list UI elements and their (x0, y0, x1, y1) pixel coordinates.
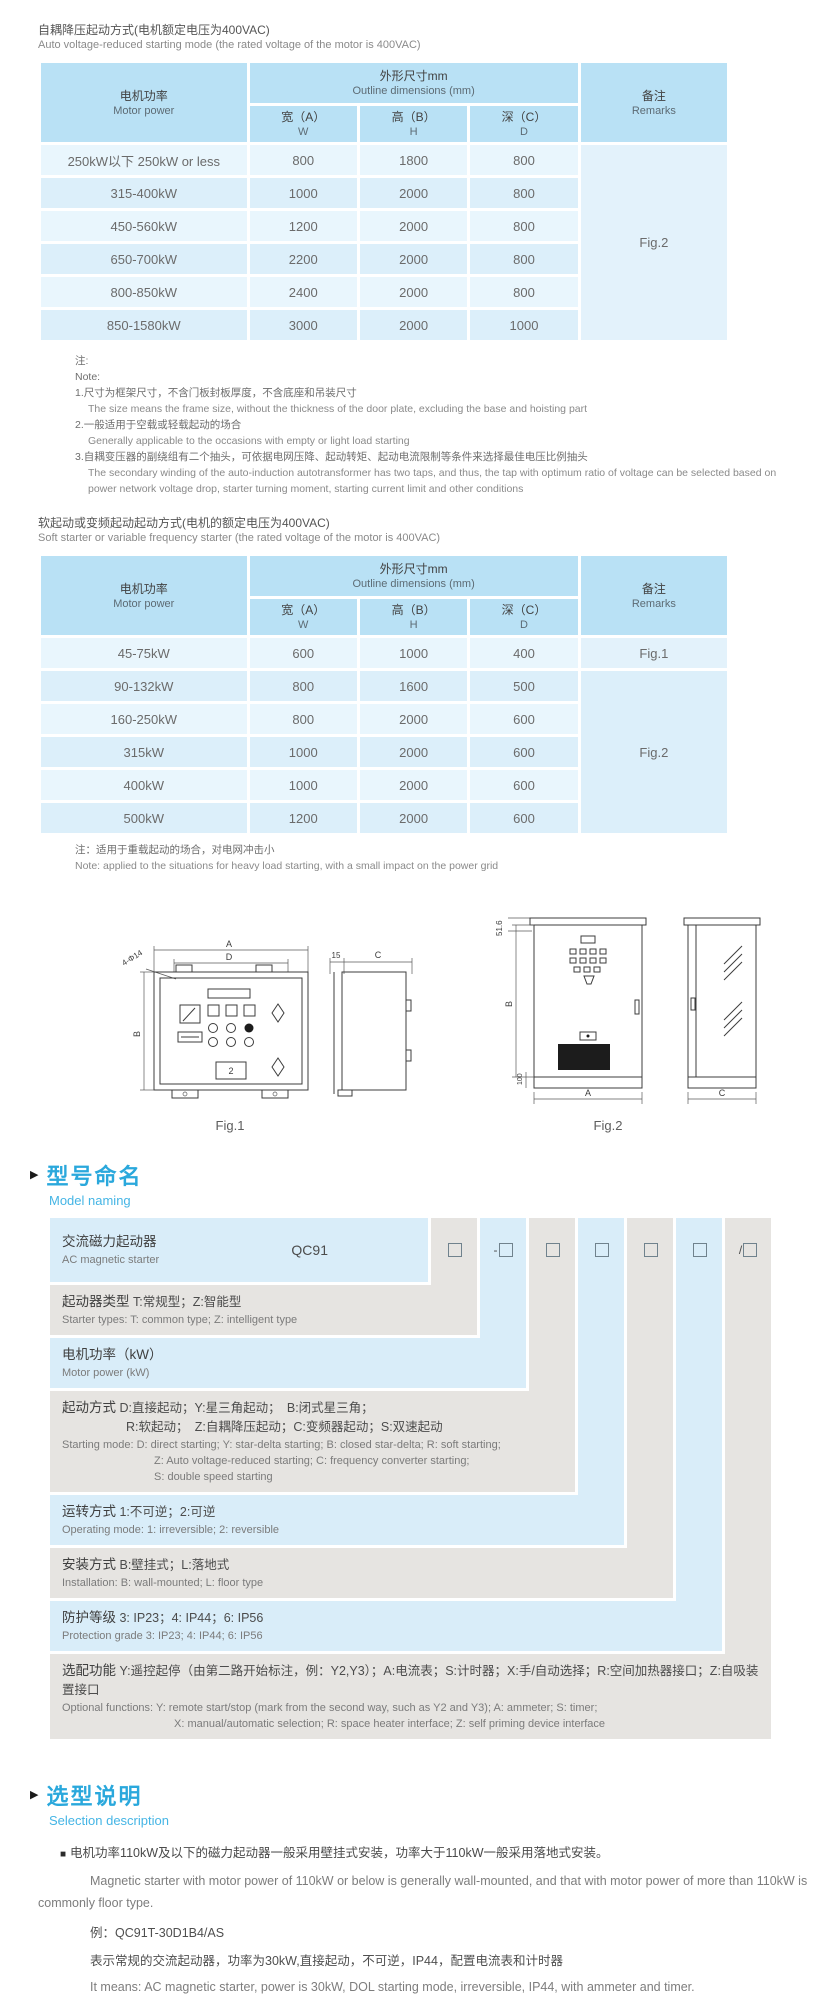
code-box-7: / (725, 1218, 771, 1282)
square-bullet: ■ (60, 1849, 66, 1860)
placeholder-box (743, 1243, 757, 1257)
fig1-drawing: A D 4-Φ14 B (116, 936, 434, 1114)
note-item: 1.尺寸为框架尺寸，不含门板封板厚度，不含底座和吊装尺寸 The size me… (75, 385, 830, 417)
width-cell: 1000 (250, 770, 357, 800)
power-cell: 500kW (41, 803, 247, 833)
code-box-3 (529, 1218, 575, 1282)
dim-label-c: C (375, 950, 382, 960)
placeholder-box (644, 1243, 658, 1257)
model-row-optional-functions: 选配功能 Y:遥控起停（由第二路开始标注，例：Y2,Y3）；A:电流表；S:计时… (50, 1654, 771, 1739)
table1-notes: 注: Note: 1.尺寸为框架尺寸，不含门板封板厚度，不含底座和吊装尺寸 Th… (75, 353, 830, 497)
header-remarks: 备注 Remarks (581, 556, 727, 635)
auto-voltage-table: 电机功率 Motor power 外形尺寸mm Outline dimensio… (38, 60, 730, 343)
power-cell: 45-75kW (41, 638, 247, 668)
width-cell: 1200 (250, 803, 357, 833)
note-mark-en: Note: (75, 369, 830, 385)
table2-title: 软起动或变频起动起动方式(电机的额定电压为400VAC) Soft starte… (38, 515, 830, 546)
width-cell: 800 (250, 704, 357, 734)
depth-cell: 800 (470, 145, 577, 175)
height-cell: 2000 (360, 704, 467, 734)
depth-cell: 400 (470, 638, 577, 668)
width-cell: 2400 (250, 277, 357, 307)
selection-paragraph-cn: ■电机功率110kW及以下的磁力起动器一般采用壁挂式安装，功率大于110kW一般… (60, 1842, 808, 1866)
header-remarks: 备注 Remarks (581, 63, 727, 142)
header-depth: 深（C） D (470, 106, 577, 142)
table-row: 45-75kW 600 1000 400 Fig.1 (41, 638, 727, 668)
model-row-starter-type: 起动器类型 T:常规型；Z:智能型 Starter types: T: comm… (50, 1285, 477, 1335)
dim-label-holes: 4-Φ14 (120, 948, 144, 968)
power-cell: 850-1580kW (41, 310, 247, 340)
height-cell: 2000 (360, 178, 467, 208)
height-cell: 2000 (360, 770, 467, 800)
remark-cell: Fig.2 (581, 145, 727, 340)
placeholder-box (448, 1243, 462, 1257)
header-outline-dimensions: 外形尺寸mm Outline dimensions (mm) (250, 556, 578, 596)
table1-title-en: Auto voltage-reduced starting mode (the … (38, 38, 830, 53)
table-row: 90-132kW 800 1600 500 Fig.2 (41, 671, 727, 701)
power-cell: 250kW以下 250kW or less (41, 145, 247, 175)
depth-cell: 800 (470, 277, 577, 307)
header-depth: 深（C） D (470, 599, 577, 635)
dim-label-d: D (226, 952, 233, 962)
height-cell: 1600 (360, 671, 467, 701)
header-motor-power: 电机功率 Motor power (41, 63, 247, 142)
depth-cell: 1000 (470, 310, 577, 340)
selection-title-en: Selection description (49, 1813, 830, 1828)
depth-cell: 600 (470, 770, 577, 800)
depth-cell: 800 (470, 244, 577, 274)
width-cell: 1000 (250, 178, 357, 208)
depth-cell: 600 (470, 737, 577, 767)
section-marker-icon: ▶ (30, 1170, 38, 1181)
note-mark-cn: 注: (75, 353, 830, 369)
width-cell: 600 (250, 638, 357, 668)
width-cell: 800 (250, 145, 357, 175)
figure-1: A D 4-Φ14 B (116, 936, 434, 1133)
dim-label-15: 15 (332, 951, 341, 960)
fig2-drawing: 51.6 100 (488, 902, 788, 1114)
depth-cell: 800 (470, 211, 577, 241)
power-cell: 90-132kW (41, 671, 247, 701)
selection-paragraph-en: Magnetic starter with motor power of 110… (38, 1870, 808, 1914)
power-cell: 160-250kW (41, 704, 247, 734)
power-cell: 450-560kW (41, 211, 247, 241)
model-row-protection-grade: 防护等级 3: IP23；4: IP44；6: IP56 Protection … (50, 1601, 722, 1651)
depth-cell: 500 (470, 671, 577, 701)
height-cell: 2000 (360, 737, 467, 767)
figures-row: A D 4-Φ14 B (116, 902, 830, 1133)
width-cell: 1000 (250, 737, 357, 767)
section-marker-icon: ▶ (30, 1790, 38, 1801)
model-naming-heading: ▶ 型号命名 Model naming (30, 1159, 830, 1208)
header-outline-dimensions: 外形尺寸mm Outline dimensions (mm) (250, 63, 578, 103)
remark-cell: Fig.1 (581, 638, 727, 668)
height-cell: 2000 (360, 803, 467, 833)
power-cell: 315-400kW (41, 178, 247, 208)
header-height: 高（B） H (360, 106, 467, 142)
model-row-motor-power: 电机功率（kW） Motor power (kW) (50, 1338, 526, 1388)
dim-label-100: 100 (517, 1073, 524, 1085)
width-cell: 800 (250, 671, 357, 701)
code-box-2: - (480, 1218, 526, 1282)
dim-label-top: 51.6 (495, 920, 504, 936)
power-cell: 400kW (41, 770, 247, 800)
dim-label-b: B (504, 1001, 514, 1007)
dim-label-a: A (585, 1088, 591, 1098)
height-cell: 2000 (360, 211, 467, 241)
placeholder-box (499, 1243, 513, 1257)
table2-title-en: Soft starter or variable frequency start… (38, 531, 830, 546)
header-motor-power: 电机功率 Motor power (41, 556, 247, 635)
code-stripe-6 (676, 1218, 722, 1651)
height-cell: 1800 (360, 145, 467, 175)
power-cell: 315kW (41, 737, 247, 767)
note-item: 3.自耦变压器的副绕组有二个抽头，可依据电网压降、起动转矩、起动电流限制等条件来… (75, 449, 830, 497)
selection-body: ■电机功率110kW及以下的磁力起动器一般采用壁挂式安装，功率大于110kW一般… (38, 1842, 808, 1998)
height-cell: 1000 (360, 638, 467, 668)
model-row-product: 交流磁力起动器 AC magnetic starter QC91 (50, 1218, 428, 1282)
note-item: 2.一般适用于空载或轻载起动的场合 Generally applicable t… (75, 417, 830, 449)
model-naming-grid: 交流磁力起动器 AC magnetic starter QC91 - / 起动器… (50, 1218, 771, 1739)
header-height: 高（B） H (360, 599, 467, 635)
table-row: 250kW以下 250kW or less 800 1800 800 Fig.2 (41, 145, 727, 175)
placeholder-box (546, 1243, 560, 1257)
depth-cell: 600 (470, 704, 577, 734)
model-code-prefix: QC91 (291, 1242, 416, 1258)
code-box-5 (627, 1218, 673, 1282)
table1-title: 自耦降压起动方式(电机额定电压为400VAC) Auto voltage-red… (38, 22, 830, 53)
code-box-4 (578, 1218, 624, 1282)
width-cell: 1200 (250, 211, 357, 241)
catalog-page: 自耦降压起动方式(电机额定电压为400VAC) Auto voltage-red… (0, 0, 830, 1998)
height-cell: 2000 (360, 244, 467, 274)
width-cell: 3000 (250, 310, 357, 340)
depth-cell: 800 (470, 178, 577, 208)
code-box-6 (676, 1218, 722, 1282)
header-width: 宽（A） W (250, 106, 357, 142)
model-naming-title-en: Model naming (49, 1193, 830, 1208)
selection-example-en: It means: AC magnetic starter, power is … (90, 1976, 808, 1998)
selection-heading: ▶ 选型说明 Selection description (30, 1779, 830, 1828)
power-cell: 650-700kW (41, 244, 247, 274)
placeholder-box (595, 1243, 609, 1257)
remark-cell: Fig.2 (581, 671, 727, 833)
dim-label-b: B (132, 1031, 142, 1037)
soft-starter-table: 电机功率 Motor power 外形尺寸mm Outline dimensio… (38, 553, 730, 836)
height-cell: 2000 (360, 310, 467, 340)
model-row-starting-mode: 起动方式 D:直接起动；Y:星三角起动； B:闭式星三角； R:软起动； Z:自… (50, 1391, 575, 1492)
height-cell: 2000 (360, 277, 467, 307)
selection-title-cn: 选型说明 (46, 1779, 142, 1811)
code-box-1 (431, 1218, 477, 1282)
power-cell: 800-850kW (41, 277, 247, 307)
depth-cell: 600 (470, 803, 577, 833)
header-width: 宽（A） W (250, 599, 357, 635)
selection-example-cn: 表示常规的交流起动器，功率为30kW,直接起动，不可逆，IP44，配置电流表和计… (90, 1950, 808, 1972)
dim-label-a: A (226, 939, 232, 949)
model-row-installation: 安装方式 B:壁挂式；L:落地式 Installation: B: wall-m… (50, 1548, 673, 1598)
fig2-caption: Fig.2 (488, 1118, 788, 1133)
placeholder-box (693, 1243, 707, 1257)
table1-title-cn: 自耦降压起动方式(电机额定电压为400VAC) (38, 22, 830, 38)
table2-note: 注：适用于重载起动的场合，对电网冲击小 Note: applied to the… (75, 842, 830, 874)
model-naming-title-cn: 型号命名 (46, 1159, 142, 1191)
model-row-operating-mode: 运转方式 1:不可逆；2:可逆 Operating mode: 1: irrev… (50, 1495, 624, 1545)
table2-title-cn: 软起动或变频起动起动方式(电机的额定电压为400VAC) (38, 515, 830, 531)
dim-label-c: C (719, 1088, 726, 1098)
selection-example-label: 例：QC91T-30D1B4/AS (90, 1922, 808, 1944)
panel-label: 2 (228, 1066, 233, 1076)
fig1-caption: Fig.1 (116, 1118, 434, 1133)
figure-2: 51.6 100 (488, 902, 788, 1133)
width-cell: 2200 (250, 244, 357, 274)
